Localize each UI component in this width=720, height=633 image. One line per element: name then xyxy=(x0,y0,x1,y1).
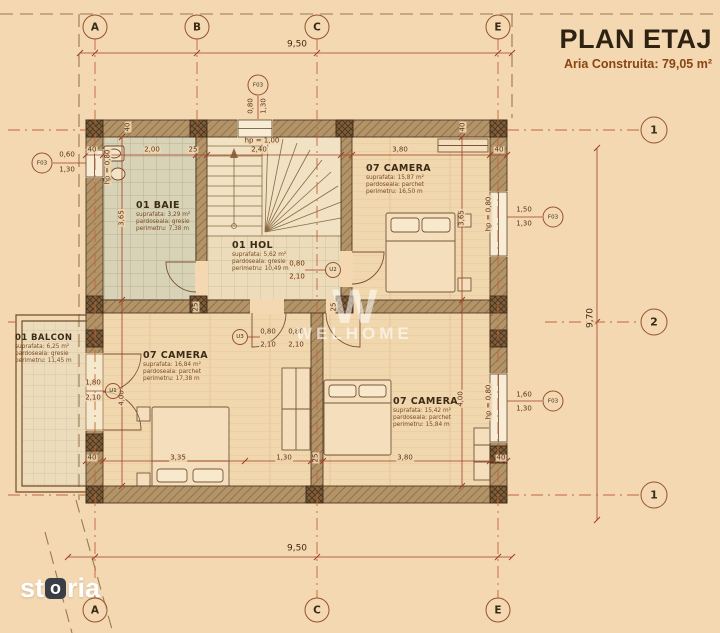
dimension-label: 1,30 xyxy=(58,167,76,174)
dimension-label: 9,50 xyxy=(286,41,308,50)
dimension-label: hp = 0,80 xyxy=(486,384,493,421)
dimension-label: 3,80 xyxy=(391,147,409,154)
dimension-label: 0,80 xyxy=(288,261,306,268)
dimension-label: 2,10 xyxy=(288,274,306,281)
dimension-label: 4,00 xyxy=(458,390,465,408)
dimension-label: 2,40 xyxy=(250,147,268,154)
window-marker-bubble: F03 xyxy=(543,207,564,228)
dimension-label: hp = 0,80 xyxy=(486,196,493,233)
dimension-label: 2,10 xyxy=(84,395,102,402)
dimension-label: 1,80 xyxy=(84,380,102,387)
grid-axis-bubble: E xyxy=(486,15,511,40)
dimension-label: 0,80 xyxy=(287,329,305,336)
dimension-label: 1,30 xyxy=(261,97,268,115)
dimension-label: 40 xyxy=(494,147,505,154)
dimension-label: 40 xyxy=(87,147,98,154)
wardrobe xyxy=(282,368,310,450)
balcony-door-threshold xyxy=(86,354,103,430)
dimension-label: hp = 1,00 xyxy=(244,138,281,145)
grid-axis-bubble: B xyxy=(185,15,210,40)
dimension-label: 0,60 xyxy=(58,152,76,159)
bed xyxy=(386,213,455,292)
dimension-label: 3,80 xyxy=(396,455,414,462)
dresser xyxy=(438,139,488,152)
dimension-label: 0,80 xyxy=(248,97,255,115)
dimension-label: 40 xyxy=(125,122,132,133)
storia-logo-o: o xyxy=(45,578,66,599)
door-marker-bubble: U2 xyxy=(325,262,341,278)
window-marker-bubble: F03 xyxy=(248,75,269,96)
grid-level-bubble: 1 xyxy=(641,117,668,144)
grid-level-bubble: 1 xyxy=(641,482,668,509)
dimension-label: 9,70 xyxy=(587,307,596,329)
built-area-label: Aria Construita: 79,05 m² xyxy=(492,57,712,71)
floor-plan-page: PLAN ETAJ Aria Construita: 79,05 m² 01 B… xyxy=(0,0,720,633)
nightstand xyxy=(137,473,150,487)
dimension-label: 1,30 xyxy=(515,406,533,413)
dimension-label: 25 xyxy=(331,302,338,313)
dimension-label: 1,50 xyxy=(515,207,533,214)
door-marker-bubble: U3 xyxy=(232,329,248,345)
cabinet xyxy=(474,428,490,480)
dimension-label: 3,65 xyxy=(119,209,126,227)
window-marker-bubble: F03 xyxy=(543,391,564,412)
dimension-label: 3,65 xyxy=(459,209,466,227)
dimension-label: 25 xyxy=(313,453,320,464)
dimension-label: 2,10 xyxy=(287,342,305,349)
grid-axis-bubble: C xyxy=(305,15,330,40)
dimension-label: 25 xyxy=(188,147,199,154)
title-block: PLAN ETAJ Aria Construita: 79,05 m² xyxy=(492,24,712,71)
dimension-label: 0,80 xyxy=(259,329,277,336)
nightstand xyxy=(458,278,471,291)
dimension-label: hp = 0,80 xyxy=(105,149,112,186)
grid-axis-bubble: A xyxy=(83,15,108,40)
dimension-label: 2,10 xyxy=(259,342,277,349)
door-marker-bubble: U1 xyxy=(105,383,121,399)
dimension-label: 40 xyxy=(460,122,467,133)
nightstand xyxy=(137,407,150,421)
bed xyxy=(324,380,391,455)
dimension-label: 2,00 xyxy=(143,147,161,154)
dimension-label: 40 xyxy=(496,455,507,462)
dimension-label: 1,30 xyxy=(515,221,533,228)
grid-axis-bubble: C xyxy=(305,598,330,623)
grid-axis-bubble: E xyxy=(486,598,511,623)
floor-plan-drawing xyxy=(0,0,720,633)
bed xyxy=(152,407,229,487)
window-marker-bubble: F03 xyxy=(32,153,53,174)
dimension-label: 9,50 xyxy=(286,545,308,554)
grid-level-bubble: 2 xyxy=(641,309,668,336)
page-title: PLAN ETAJ xyxy=(492,24,712,55)
dimension-label: 3,35 xyxy=(169,455,187,462)
dimension-label: 1,30 xyxy=(275,455,293,462)
dimension-label: 40 xyxy=(87,455,98,462)
dimension-label: 1,60 xyxy=(515,392,533,399)
dimension-label: 25 xyxy=(193,302,200,313)
storia-logo: storia xyxy=(20,573,100,604)
